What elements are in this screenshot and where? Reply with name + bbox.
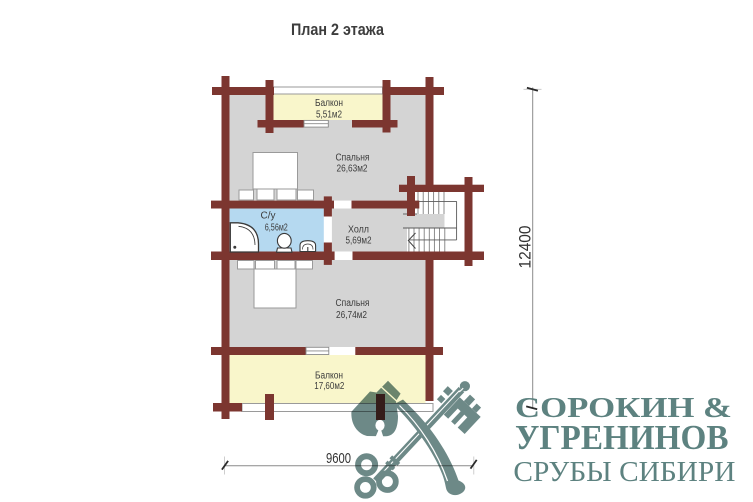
svg-text:Спальня: Спальня [336,298,370,309]
svg-text:9600: 9600 [326,450,351,467]
svg-text:УГРЕНИНОВ: УГРЕНИНОВ [515,418,729,457]
svg-text:26,63м2: 26,63м2 [337,164,368,175]
svg-text:План 2 этажа: План 2 этажа [291,21,385,39]
svg-text:СРУБЫ СИБИРИ: СРУБЫ СИБИРИ [513,457,735,488]
svg-text:5,69м2: 5,69м2 [346,236,372,247]
svg-text:26,74м2: 26,74м2 [336,310,367,321]
svg-text:Балкон: Балкон [315,98,343,109]
svg-text:Спальня: Спальня [336,153,370,164]
svg-text:С/у: С/у [261,211,276,222]
svg-text:6,56м2: 6,56м2 [265,223,288,234]
svg-text:12400: 12400 [517,226,535,269]
svg-text:Холл: Холл [348,225,369,236]
svg-text:Балкон: Балкон [315,371,343,382]
svg-text:5,51м2: 5,51м2 [316,110,342,121]
svg-text:17,60м2: 17,60м2 [314,381,344,392]
